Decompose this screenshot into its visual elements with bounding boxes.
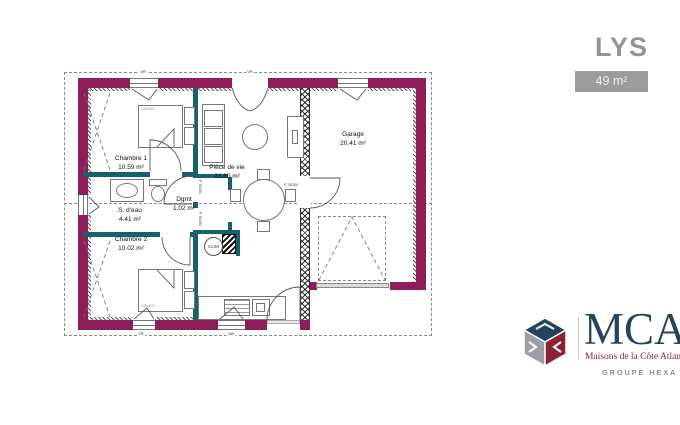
kitchen-oven-door — [256, 303, 265, 312]
room-label-sdeau: S. d'eau 4.41 m² — [118, 207, 142, 225]
bed-size-label: 140x190 — [141, 108, 154, 112]
door-size-label: P 75/204 — [198, 180, 202, 194]
hatch-band — [413, 88, 416, 282]
door-size-label: P 75/204 — [284, 184, 298, 188]
plan-title: LYS — [520, 32, 648, 63]
hatch-band — [88, 215, 91, 317]
window-sdeau — [78, 195, 88, 215]
sideboard-handle — [292, 130, 298, 144]
brand-name: MCA — [584, 307, 680, 352]
dim-label: 240 — [227, 332, 236, 336]
hatch-band — [88, 88, 130, 91]
sofa-cushion — [204, 128, 223, 145]
wall-int-kitchen-v — [236, 234, 240, 256]
shutter-label: VR — [246, 70, 254, 74]
sofa-cushion — [204, 146, 223, 163]
clim-unit: CLIM — [204, 237, 223, 256]
hatch-band — [310, 88, 338, 91]
pillow — [184, 291, 195, 309]
wall-int-h1-b — [182, 172, 193, 177]
wall-garage-bottom — [390, 282, 426, 290]
garage-door-panel — [316, 283, 389, 288]
bed-size-label: 140x190 — [141, 305, 154, 309]
door-opening-garage — [299, 176, 311, 208]
duct — [222, 234, 236, 254]
hatch-band — [368, 88, 413, 91]
door-size-label: P 75/204 — [198, 212, 202, 226]
toilet-bowl — [151, 186, 165, 202]
pillow — [184, 271, 195, 289]
room-label-garage: Garage 20.41 m² — [340, 131, 366, 149]
hatch-band — [88, 88, 91, 195]
wall-garage-right — [416, 78, 426, 290]
chair — [230, 189, 241, 202]
pillow — [184, 127, 195, 145]
washbasin — [116, 183, 138, 198]
shutter-label: VR — [137, 332, 145, 336]
entry-door-sill — [267, 320, 300, 324]
logo-divider — [578, 317, 579, 359]
dining-table — [243, 179, 285, 221]
room-label-piece-de-vie: Pièce de vie 23.80 m² — [209, 164, 244, 182]
kitchen-sink — [224, 299, 250, 316]
hatch-band — [268, 88, 300, 91]
window-garage — [338, 78, 368, 88]
brand-tagline: Maisons de la Côte Atlantique — [585, 352, 680, 362]
chair — [285, 189, 296, 202]
wall-int-h2-b — [190, 232, 193, 237]
coffee-table — [242, 124, 268, 150]
room-label-chambre1: Chambre 1 10.59 m² — [115, 155, 147, 173]
window-chambre2 — [133, 320, 155, 330]
clim-label: CLIM — [208, 244, 219, 249]
window-chambre1 — [130, 78, 158, 88]
mca-cube-icon — [518, 313, 578, 373]
area-badge: 49 m² — [575, 71, 648, 92]
window-kitchen — [218, 320, 245, 330]
floor-plan-sheet: CLIM 140x190 140x190 — [0, 0, 680, 425]
brand-group: GROUPE HEXA — [602, 368, 677, 377]
wall-int-h1-a — [83, 172, 150, 177]
chair — [257, 221, 270, 232]
room-label-chambre2: Chambre 2 10.02 m² — [115, 236, 147, 254]
sofa-cushion — [204, 110, 223, 127]
room-label-dgmt: Dgmt 1.02 m² — [173, 196, 195, 214]
toilet-tank — [149, 179, 167, 186]
french-door-opening — [232, 78, 268, 88]
hatch-band — [88, 317, 133, 320]
pillow — [184, 107, 195, 125]
shutter-label: VR — [139, 70, 147, 74]
garage-door-swing — [318, 216, 386, 281]
